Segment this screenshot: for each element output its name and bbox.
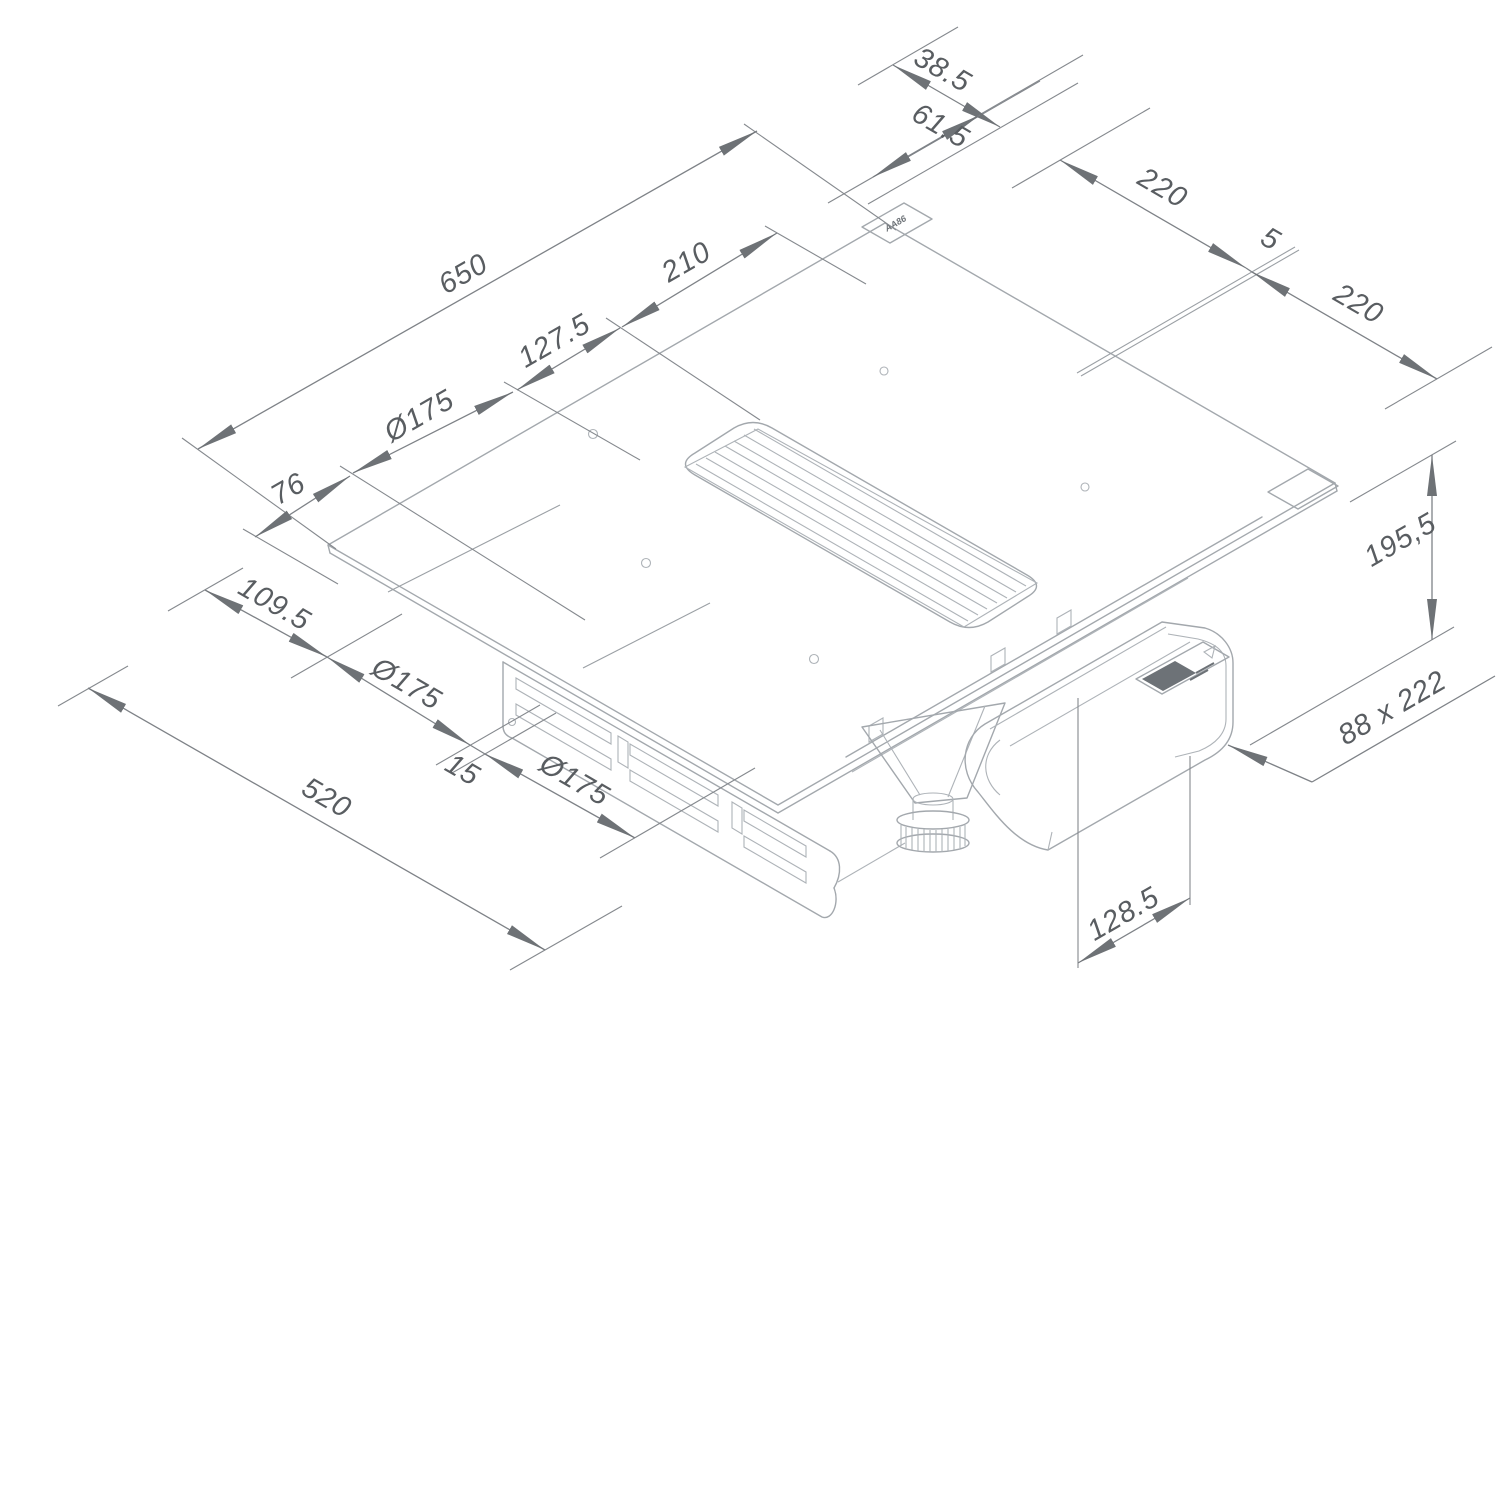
chassis-vent-slots: [503, 662, 840, 918]
cooking-zone-markers: [388, 367, 1089, 668]
dim-marking-outer: 38.5: [908, 41, 976, 99]
flex-zone-split-line: [1077, 247, 1299, 376]
technical-drawing-page: AA86: [0, 0, 1502, 1492]
control-window: [1268, 469, 1338, 509]
dim-duct-offset-label: 128.5: [1082, 881, 1165, 948]
dim-duct-section: 88 x 222: [1228, 665, 1495, 782]
rear-marking-window: AA86: [862, 203, 932, 243]
dim-duct-offset: 128.5: [1078, 698, 1190, 968]
dim-zone-gap: 15: [440, 748, 486, 793]
dim-chain-rear-marking: 38.5 61.5: [828, 27, 1083, 204]
dim-flex-gap: 5: [1255, 221, 1286, 257]
dim-duct-section-label: 88 x 222: [1333, 665, 1452, 752]
dim-zone-a-diameter: Ø175: [365, 651, 447, 717]
glass-top: [328, 223, 1337, 813]
dim-chain-rear-left: 650 210 127.5 Ø175 76: [182, 124, 896, 620]
dim-chain-right-flex: 220 5 220: [1012, 108, 1492, 409]
dim-zone-b-diameter: Ø175: [533, 747, 615, 813]
dim-zone-offset: 127.5: [513, 308, 596, 375]
dim-total-width: 650: [433, 248, 494, 301]
dim-total-depth: 520: [296, 772, 357, 825]
rating-label: [1136, 642, 1229, 694]
isometric-hob-drawing: AA86: [0, 0, 1502, 1492]
dim-grille-offset: 210: [655, 236, 716, 290]
dim-height-total: 195,5: [1359, 507, 1442, 574]
dim-chain-front-left: 109.5 Ø175 15 Ø175 520: [58, 568, 755, 970]
chassis-underside: [838, 517, 1262, 882]
air-intake-grille: [685, 423, 1037, 628]
dim-flex-front: 220: [1327, 277, 1388, 331]
